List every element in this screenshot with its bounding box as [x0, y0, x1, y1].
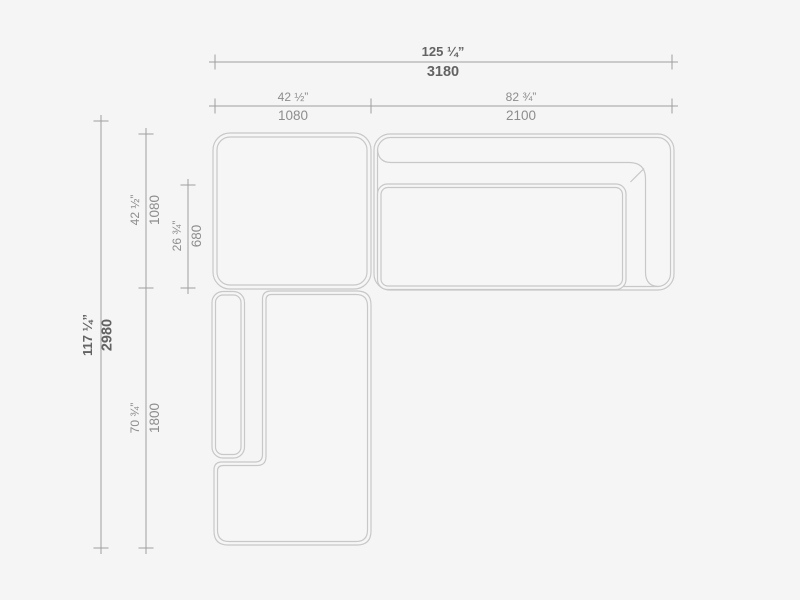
label-seat-depth-inches: 26 ¾”	[170, 221, 184, 252]
label-left-section-width-mm: 1080	[278, 108, 308, 124]
technical-drawing-canvas: 125 ¼” 3180 42 ½” 1080 82 ¾” 2100 117 ¼”…	[0, 0, 800, 600]
label-top-section-depth-mm: 1080	[147, 195, 163, 225]
label-overall-depth-mm: 2980	[99, 319, 116, 351]
right-seat-cushion	[378, 184, 627, 290]
label-chaise-length-mm: 1800	[147, 403, 163, 433]
label-overall-depth-inches: 117 ¼”	[80, 314, 96, 356]
right-sofa-module-outline	[374, 134, 674, 290]
label-chaise-length-inches: 70 ¾”	[128, 403, 142, 434]
label-overall-width-mm: 3180	[427, 64, 459, 81]
sofa-outlines	[212, 133, 674, 545]
label-right-section-width-mm: 2100	[506, 108, 536, 124]
corner-module-outline	[213, 133, 371, 289]
chaise-armrest-outline	[212, 292, 245, 459]
label-right-section-width-inches: 82 ¾”	[506, 90, 537, 104]
label-top-section-depth-inches: 42 ½”	[128, 195, 142, 226]
label-left-section-width-inches: 42 ½”	[278, 90, 309, 104]
label-overall-width-inches: 125 ¼”	[422, 44, 465, 60]
dim-line-depth-sections	[139, 128, 154, 554]
label-seat-depth-mm: 680	[189, 225, 205, 248]
dimension-lines	[94, 55, 679, 555]
sofa-plan-drawing	[0, 0, 800, 600]
